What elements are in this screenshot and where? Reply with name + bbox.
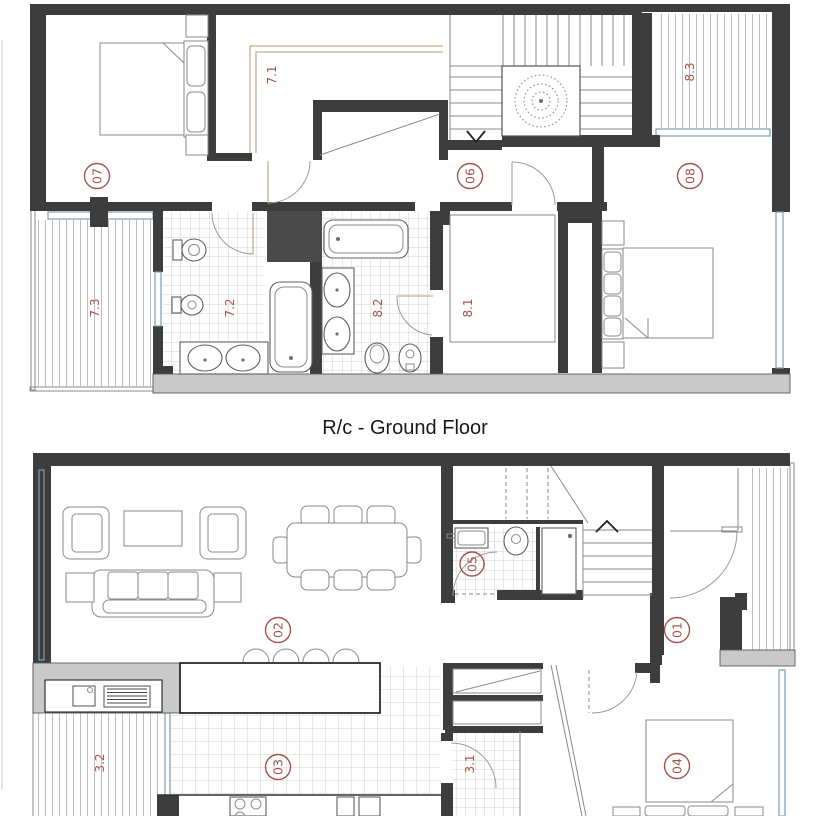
room-number-03: 03: [271, 759, 286, 775]
room-number-04: 04: [670, 758, 685, 774]
balcony-7-3: [30, 200, 153, 391]
hall-door-leaf: [551, 665, 637, 816]
stairs: [450, 15, 632, 142]
room-label-7-3: 7.3: [88, 298, 102, 317]
armchair: [200, 507, 246, 559]
double-sink-icon: [180, 342, 268, 374]
kitchen-terrace-window: [165, 713, 170, 795]
room-number-08: 08: [683, 168, 698, 184]
balcony-8-3: [656, 14, 770, 136]
cabinet: [359, 797, 380, 816]
double-sink-icon: [322, 268, 354, 354]
room-label-7-2: 7.2: [223, 298, 237, 317]
nightstand: [735, 807, 763, 816]
room-number-01: 01: [670, 622, 685, 638]
bidet-icon: [399, 344, 421, 372]
bedroom-04-window: [779, 670, 785, 816]
room-label-3-1: 3.1: [463, 754, 477, 773]
dining-chair: [334, 570, 362, 590]
double-bed-04: [613, 720, 763, 816]
nightstand: [602, 221, 624, 245]
pillow: [688, 806, 728, 816]
wardrobe-7-1: [250, 46, 443, 153]
toilet-icon: [504, 527, 528, 555]
double-bed-07: [100, 15, 208, 155]
bidet-icon: [172, 295, 203, 315]
closet-7-1: [313, 100, 448, 160]
balcony-window: [656, 129, 770, 136]
ground-floor-plan: 02 01 05 03 04 3.2 3.1: [33, 453, 795, 816]
bathtub-icon: [324, 220, 408, 258]
toilet-icon: [365, 343, 389, 373]
nightstand: [613, 807, 640, 816]
sink-icon: [73, 686, 95, 706]
bedroom-04-top-wall: [720, 650, 795, 666]
kitchen-island-counter: [180, 663, 380, 713]
room-label-8-3: 8.3: [683, 62, 697, 81]
pillow: [604, 274, 621, 294]
cooktop-icon: [230, 797, 266, 816]
room-label-7-1: 7.1: [265, 65, 279, 84]
coffee-table: [124, 511, 182, 546]
armchair: [63, 507, 109, 559]
floor-plan-page: 07 7.1 06 08 8.3 7.3 7.2 8.2 8.1 R/c - G…: [0, 0, 830, 816]
first-floor-bottom-wall: [153, 374, 790, 393]
room-label-8-2: 8.2: [371, 298, 385, 317]
door-arc: [592, 672, 637, 713]
living-room-furniture: [63, 506, 421, 617]
nightstand: [602, 342, 624, 368]
room-number-02: 02: [271, 622, 286, 638]
plan-title: R/c - Ground Floor: [322, 417, 488, 439]
room-label-3-2: 3.2: [93, 753, 107, 772]
pillow: [187, 46, 205, 86]
wardrobe-8-1: [450, 215, 555, 342]
cabinet: [337, 797, 354, 816]
dining-chair: [301, 570, 329, 590]
duct-shaft: [267, 211, 322, 262]
room-number-06: 06: [463, 168, 478, 184]
toilet-icon: [173, 239, 206, 261]
floor-plan-drawing: 07 7.1 06 08 8.3 7.3 7.2 8.2 8.1 R/c - G…: [0, 0, 830, 816]
bar-stools: [243, 649, 359, 662]
pillow: [645, 806, 685, 816]
bathroom-7-2-window: [155, 272, 161, 326]
first-floor-plan: 07 7.1 06 08 8.3 7.3 7.2 8.2 8.1: [30, 4, 790, 393]
grill-icon: [104, 686, 150, 707]
kitchen-counter: [157, 795, 441, 816]
dining-set: [273, 506, 421, 590]
bedroom-08-window: [776, 212, 783, 368]
side-table: [66, 573, 94, 602]
room-number-07: 07: [90, 168, 105, 184]
pillow: [604, 318, 621, 336]
room-number-05: 05: [465, 556, 480, 572]
entry-hall-01: [670, 468, 742, 598]
sofa: [92, 570, 214, 617]
nightstand: [186, 135, 208, 155]
door-arc: [512, 162, 555, 205]
nightstand: [186, 15, 208, 37]
bathtub-icon: [270, 282, 312, 372]
double-bed-08: [602, 221, 713, 368]
room-label-8-1: 8.1: [461, 298, 475, 317]
shower-icon: [542, 528, 576, 594]
bedroom-04: [613, 670, 785, 816]
dining-table: [287, 523, 407, 577]
door-arc: [268, 161, 310, 203]
side-table: [214, 573, 241, 602]
pillow: [187, 92, 205, 132]
pillow: [604, 296, 621, 316]
terrace-counter: [33, 663, 180, 713]
door-arc: [670, 531, 737, 598]
entry-porch-hatch: [747, 468, 790, 650]
dining-chair: [367, 570, 395, 590]
pillow: [604, 252, 621, 272]
